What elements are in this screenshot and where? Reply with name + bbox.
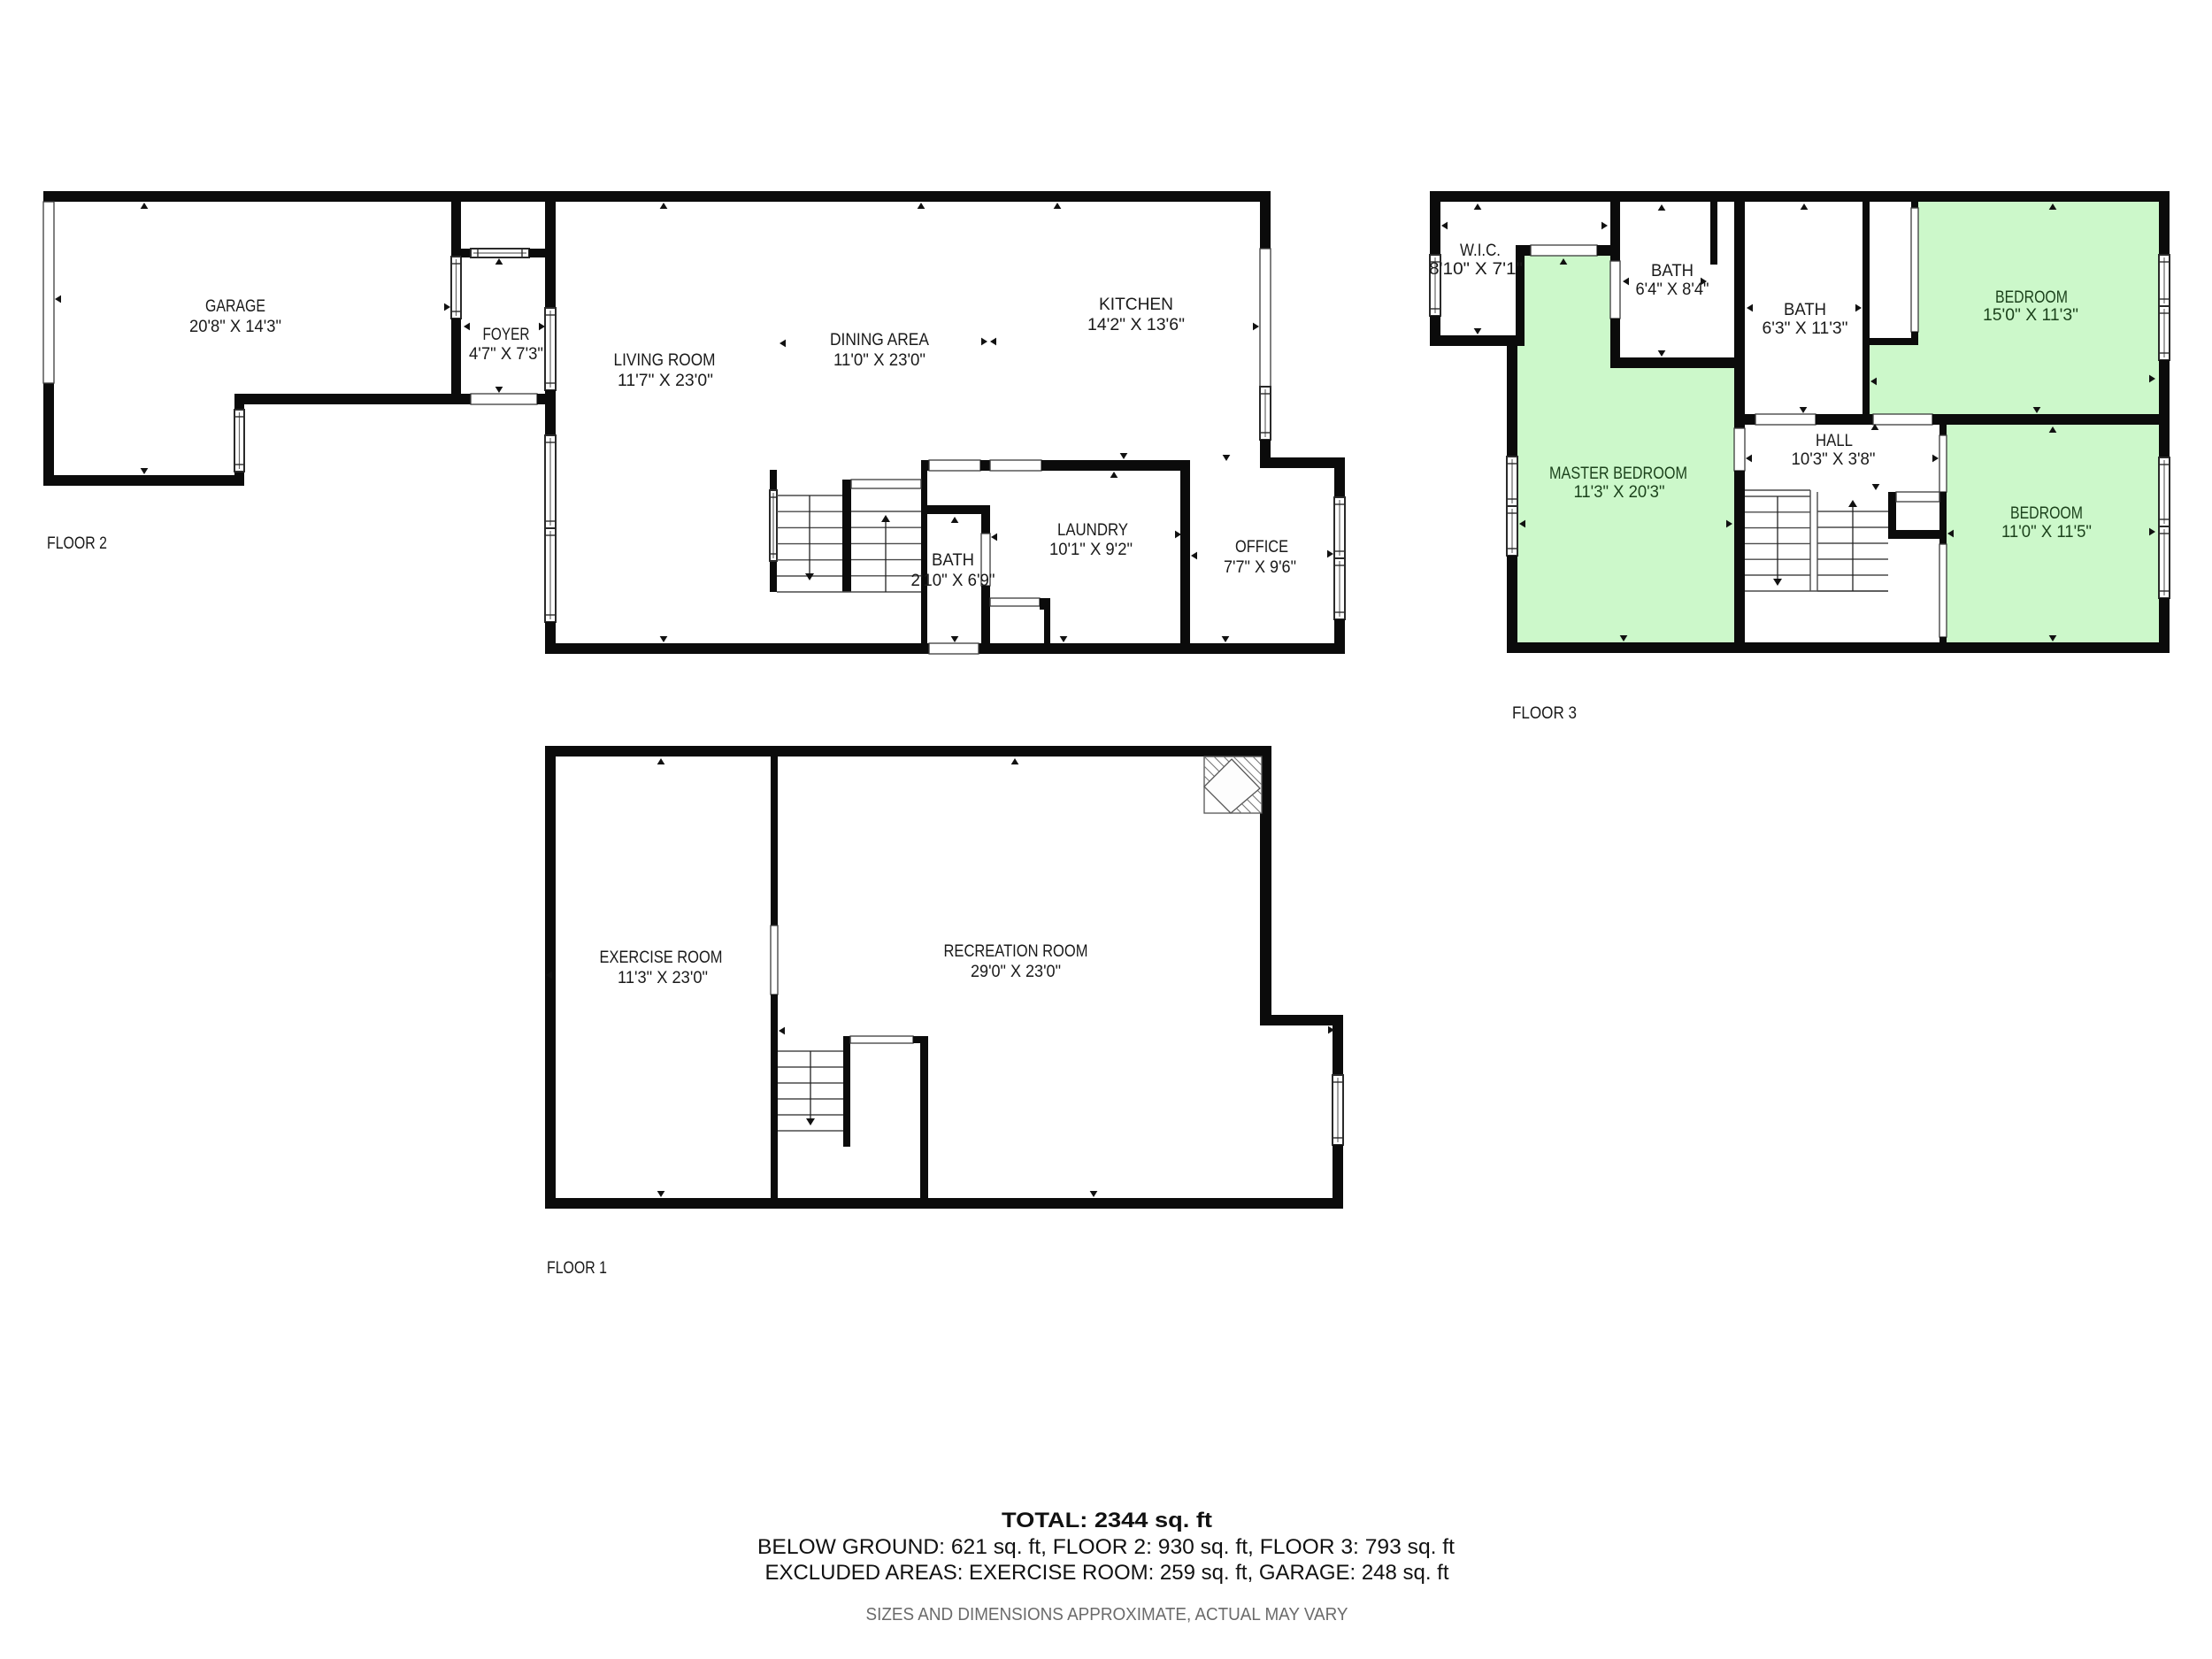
svg-text:TOTAL: 2344 sq. ft: TOTAL: 2344 sq. ft: [1002, 1509, 1212, 1532]
svg-text:FOYER: FOYER: [483, 326, 530, 344]
svg-text:6'3" X 11'3": 6'3" X 11'3": [1763, 319, 1848, 338]
svg-text:LIVING ROOM: LIVING ROOM: [614, 351, 716, 370]
svg-text:8'10" X 7'1": 8'10" X 7'1": [1429, 260, 1523, 279]
svg-text:HALL: HALL: [1816, 432, 1853, 450]
svg-text:15'0" X 11'3": 15'0" X 11'3": [1983, 306, 2078, 325]
svg-text:11'0" X 11'5": 11'0" X 11'5": [2001, 523, 2092, 541]
svg-text:SIZES AND DIMENSIONS APPROXIMA: SIZES AND DIMENSIONS APPROXIMATE, ACTUAL…: [866, 1605, 1348, 1624]
svg-text:10'3" X 3'8": 10'3" X 3'8": [1792, 450, 1876, 469]
svg-text:FLOOR 3: FLOOR 3: [1512, 704, 1577, 723]
svg-text:7'7" X 9'6": 7'7" X 9'6": [1224, 558, 1296, 577]
svg-text:KITCHEN: KITCHEN: [1099, 296, 1173, 314]
svg-text:11'3" X 20'3": 11'3" X 20'3": [1574, 483, 1665, 502]
svg-text:MASTER BEDROOM: MASTER BEDROOM: [1549, 465, 1687, 483]
svg-text:2'10" X 6'9": 2'10" X 6'9": [911, 572, 995, 590]
svg-text:BATH: BATH: [1651, 262, 1694, 280]
svg-text:11'3" X 23'0": 11'3" X 23'0": [618, 969, 708, 987]
svg-text:BEDROOM: BEDROOM: [1995, 288, 2068, 307]
svg-text:OFFICE: OFFICE: [1235, 538, 1288, 557]
svg-text:BEDROOM: BEDROOM: [2010, 504, 2083, 523]
svg-text:FLOOR 2: FLOOR 2: [47, 534, 107, 553]
svg-text:11'7" X 23'0": 11'7" X 23'0": [618, 372, 713, 390]
svg-text:RECREATION ROOM: RECREATION ROOM: [944, 942, 1088, 961]
svg-text:EXCLUDED AREAS: EXERCISE ROOM:: EXCLUDED AREAS: EXERCISE ROOM: 259 sq. f…: [765, 1561, 1449, 1585]
svg-text:4'7" X 7'3": 4'7" X 7'3": [469, 345, 543, 364]
svg-text:DINING AREA: DINING AREA: [830, 331, 929, 349]
svg-text:GARAGE: GARAGE: [205, 297, 265, 316]
svg-text:BATH: BATH: [1784, 301, 1826, 319]
svg-text:W.I.C.: W.I.C.: [1460, 242, 1501, 260]
svg-text:6'4" X 8'4": 6'4" X 8'4": [1636, 280, 1709, 299]
svg-text:11'0" X 23'0": 11'0" X 23'0": [833, 351, 926, 370]
svg-text:10'1" X 9'2": 10'1" X 9'2": [1049, 541, 1133, 559]
svg-text:14'2" X 13'6": 14'2" X 13'6": [1087, 316, 1185, 334]
svg-text:20'8" X 14'3": 20'8" X 14'3": [189, 318, 281, 336]
svg-text:FLOOR 1: FLOOR 1: [547, 1259, 607, 1278]
svg-text:LAUNDRY: LAUNDRY: [1057, 521, 1128, 540]
svg-text:29'0" X 23'0": 29'0" X 23'0": [971, 963, 1061, 981]
svg-text:EXERCISE ROOM: EXERCISE ROOM: [600, 949, 723, 967]
svg-text:BELOW GROUND: 621 sq. ft, FLOO: BELOW GROUND: 621 sq. ft, FLOOR 2: 930 s…: [757, 1535, 1455, 1559]
svg-text:BATH: BATH: [932, 551, 974, 570]
